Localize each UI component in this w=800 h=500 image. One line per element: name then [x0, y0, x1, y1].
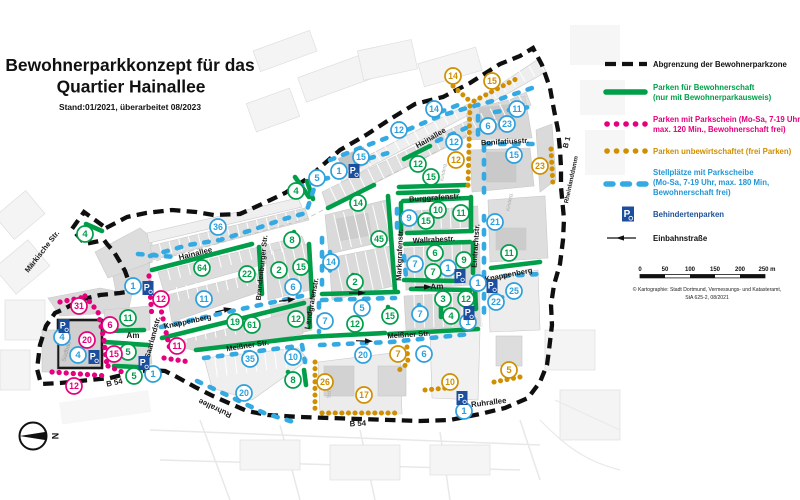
svg-text:4: 4	[82, 229, 88, 240]
svg-text:3: 3	[440, 294, 445, 305]
svg-text:2: 2	[352, 277, 357, 288]
svg-text:Am: Am	[430, 282, 443, 291]
svg-text:9: 9	[406, 213, 411, 224]
svg-text:6: 6	[290, 282, 295, 293]
svg-text:12: 12	[69, 381, 79, 391]
svg-text:26: 26	[320, 377, 330, 387]
svg-text:25: 25	[509, 286, 519, 296]
svg-text:23: 23	[502, 119, 512, 129]
svg-text:45: 45	[374, 234, 384, 244]
svg-text:10: 10	[433, 205, 443, 215]
svg-text:max. 120 Min., Bewohnerschaft: max. 120 Min., Bewohnerschaft frei)	[653, 125, 786, 134]
svg-text:Einbahnstraße: Einbahnstraße	[653, 234, 708, 243]
svg-text:11: 11	[504, 248, 513, 258]
svg-text:12: 12	[449, 137, 459, 147]
svg-text:Stellplätze mit Parkscheibe: Stellplätze mit Parkscheibe	[653, 168, 754, 177]
svg-text:Parken für Bewohnerschaft: Parken für Bewohnerschaft	[653, 83, 755, 92]
svg-text:1: 1	[461, 406, 467, 417]
svg-text:(nur mit Bewohnerparkausweis): (nur mit Bewohnerparkausweis)	[653, 93, 772, 102]
svg-text:15: 15	[356, 152, 366, 162]
svg-text:250 m: 250 m	[758, 267, 775, 273]
svg-text:4: 4	[59, 332, 65, 343]
svg-text:10: 10	[445, 377, 455, 387]
svg-text:11: 11	[172, 341, 181, 351]
svg-text:6: 6	[107, 320, 112, 331]
svg-text:Bewohnerparkkonzept für das: Bewohnerparkkonzept für das	[5, 55, 254, 75]
svg-text:StA 625-2, 08/2021: StA 625-2, 08/2021	[685, 295, 729, 301]
svg-text:5: 5	[131, 371, 137, 382]
svg-text:B 54: B 54	[349, 419, 367, 429]
svg-text:17: 17	[359, 390, 369, 400]
svg-text:1: 1	[150, 369, 156, 380]
svg-text:11: 11	[123, 313, 132, 323]
svg-text:12: 12	[461, 294, 471, 304]
svg-text:12: 12	[451, 155, 461, 165]
svg-text:Quartier Hainallee: Quartier Hainallee	[57, 77, 206, 97]
svg-text:12: 12	[350, 319, 360, 329]
svg-text:1: 1	[475, 278, 481, 289]
svg-text:12: 12	[156, 294, 166, 304]
svg-text:35: 35	[245, 354, 255, 364]
svg-text:21: 21	[490, 217, 500, 227]
svg-text:6: 6	[485, 121, 490, 132]
svg-text:© Kartographie: Stadt Dortmund: © Kartographie: Stadt Dortmund, Vermessu…	[633, 286, 781, 293]
svg-text:6: 6	[432, 248, 437, 259]
svg-text:1: 1	[445, 263, 451, 274]
svg-text:10: 10	[288, 352, 298, 362]
svg-text:20: 20	[358, 350, 368, 360]
svg-text:1: 1	[336, 166, 342, 177]
svg-text:14: 14	[429, 104, 439, 114]
svg-text:64: 64	[197, 263, 207, 273]
svg-text:12: 12	[291, 314, 301, 324]
svg-text:9: 9	[461, 255, 466, 266]
svg-text:1: 1	[130, 281, 136, 292]
svg-text:8: 8	[290, 375, 295, 386]
svg-text:15: 15	[296, 262, 306, 272]
svg-text:11: 11	[456, 208, 465, 218]
svg-text:14: 14	[448, 71, 458, 81]
svg-text:5: 5	[359, 303, 365, 314]
svg-text:14: 14	[353, 198, 363, 208]
svg-text:Bewohnerschaft frei): Bewohnerschaft frei)	[653, 188, 731, 197]
svg-text:61: 61	[247, 320, 257, 330]
svg-text:5: 5	[314, 173, 320, 184]
svg-text:8: 8	[289, 235, 294, 246]
svg-text:15: 15	[487, 76, 497, 86]
svg-text:14: 14	[326, 257, 336, 267]
svg-text:23: 23	[535, 161, 545, 171]
svg-text:Stand:01/2021, überarbeitet 08: Stand:01/2021, überarbeitet 08/2023	[59, 102, 201, 112]
svg-text:7: 7	[412, 259, 417, 270]
svg-text:Parken mit Parkschein (Mo-Sa,: Parken mit Parkschein (Mo-Sa, 7-19 Uhr,	[653, 115, 800, 124]
svg-text:11: 11	[199, 294, 208, 304]
svg-text:15: 15	[421, 216, 431, 226]
svg-text:P: P	[624, 209, 631, 220]
svg-text:4: 4	[448, 311, 454, 322]
svg-text:15: 15	[509, 150, 519, 160]
svg-text:N: N	[50, 433, 60, 440]
svg-text:15: 15	[109, 349, 119, 359]
svg-text:20: 20	[239, 388, 249, 398]
svg-text:7: 7	[395, 349, 400, 360]
svg-text:22: 22	[491, 297, 501, 307]
svg-text:150: 150	[710, 267, 721, 273]
svg-text:5: 5	[506, 365, 512, 376]
svg-text:7: 7	[322, 316, 327, 327]
svg-text:31: 31	[74, 301, 84, 311]
svg-text:15: 15	[385, 311, 395, 321]
svg-text:12: 12	[394, 125, 404, 135]
svg-text:19: 19	[230, 317, 240, 327]
svg-text:12: 12	[413, 159, 423, 169]
svg-text:Parken unbewirtschaftet (frei: Parken unbewirtschaftet (frei Parken)	[653, 147, 792, 156]
svg-text:7: 7	[417, 309, 422, 320]
svg-text:4: 4	[75, 350, 81, 361]
svg-text:Abgrenzung der Bewohnerparkzon: Abgrenzung der Bewohnerparkzone	[653, 60, 788, 69]
svg-text:2: 2	[276, 265, 281, 276]
svg-text:11: 11	[512, 104, 521, 114]
svg-text:15: 15	[426, 172, 436, 182]
svg-text:100: 100	[685, 267, 696, 273]
svg-text:7: 7	[430, 267, 435, 278]
svg-text:(Mo-Sa, 7-19 Uhr, max. 180 Min: (Mo-Sa, 7-19 Uhr, max. 180 Min,	[653, 178, 769, 187]
svg-text:4: 4	[293, 186, 299, 197]
svg-text:36: 36	[213, 222, 223, 232]
svg-text:Am: Am	[127, 331, 140, 340]
svg-text:Behindertenparken: Behindertenparken	[653, 210, 724, 219]
svg-text:5: 5	[125, 347, 131, 358]
svg-text:6: 6	[421, 349, 426, 360]
svg-text:200: 200	[735, 267, 746, 273]
svg-text:20: 20	[82, 335, 92, 345]
svg-text:22: 22	[242, 269, 252, 279]
svg-text:50: 50	[662, 267, 669, 273]
svg-text:Markgrafenstr.: Markgrafenstr.	[394, 229, 405, 281]
